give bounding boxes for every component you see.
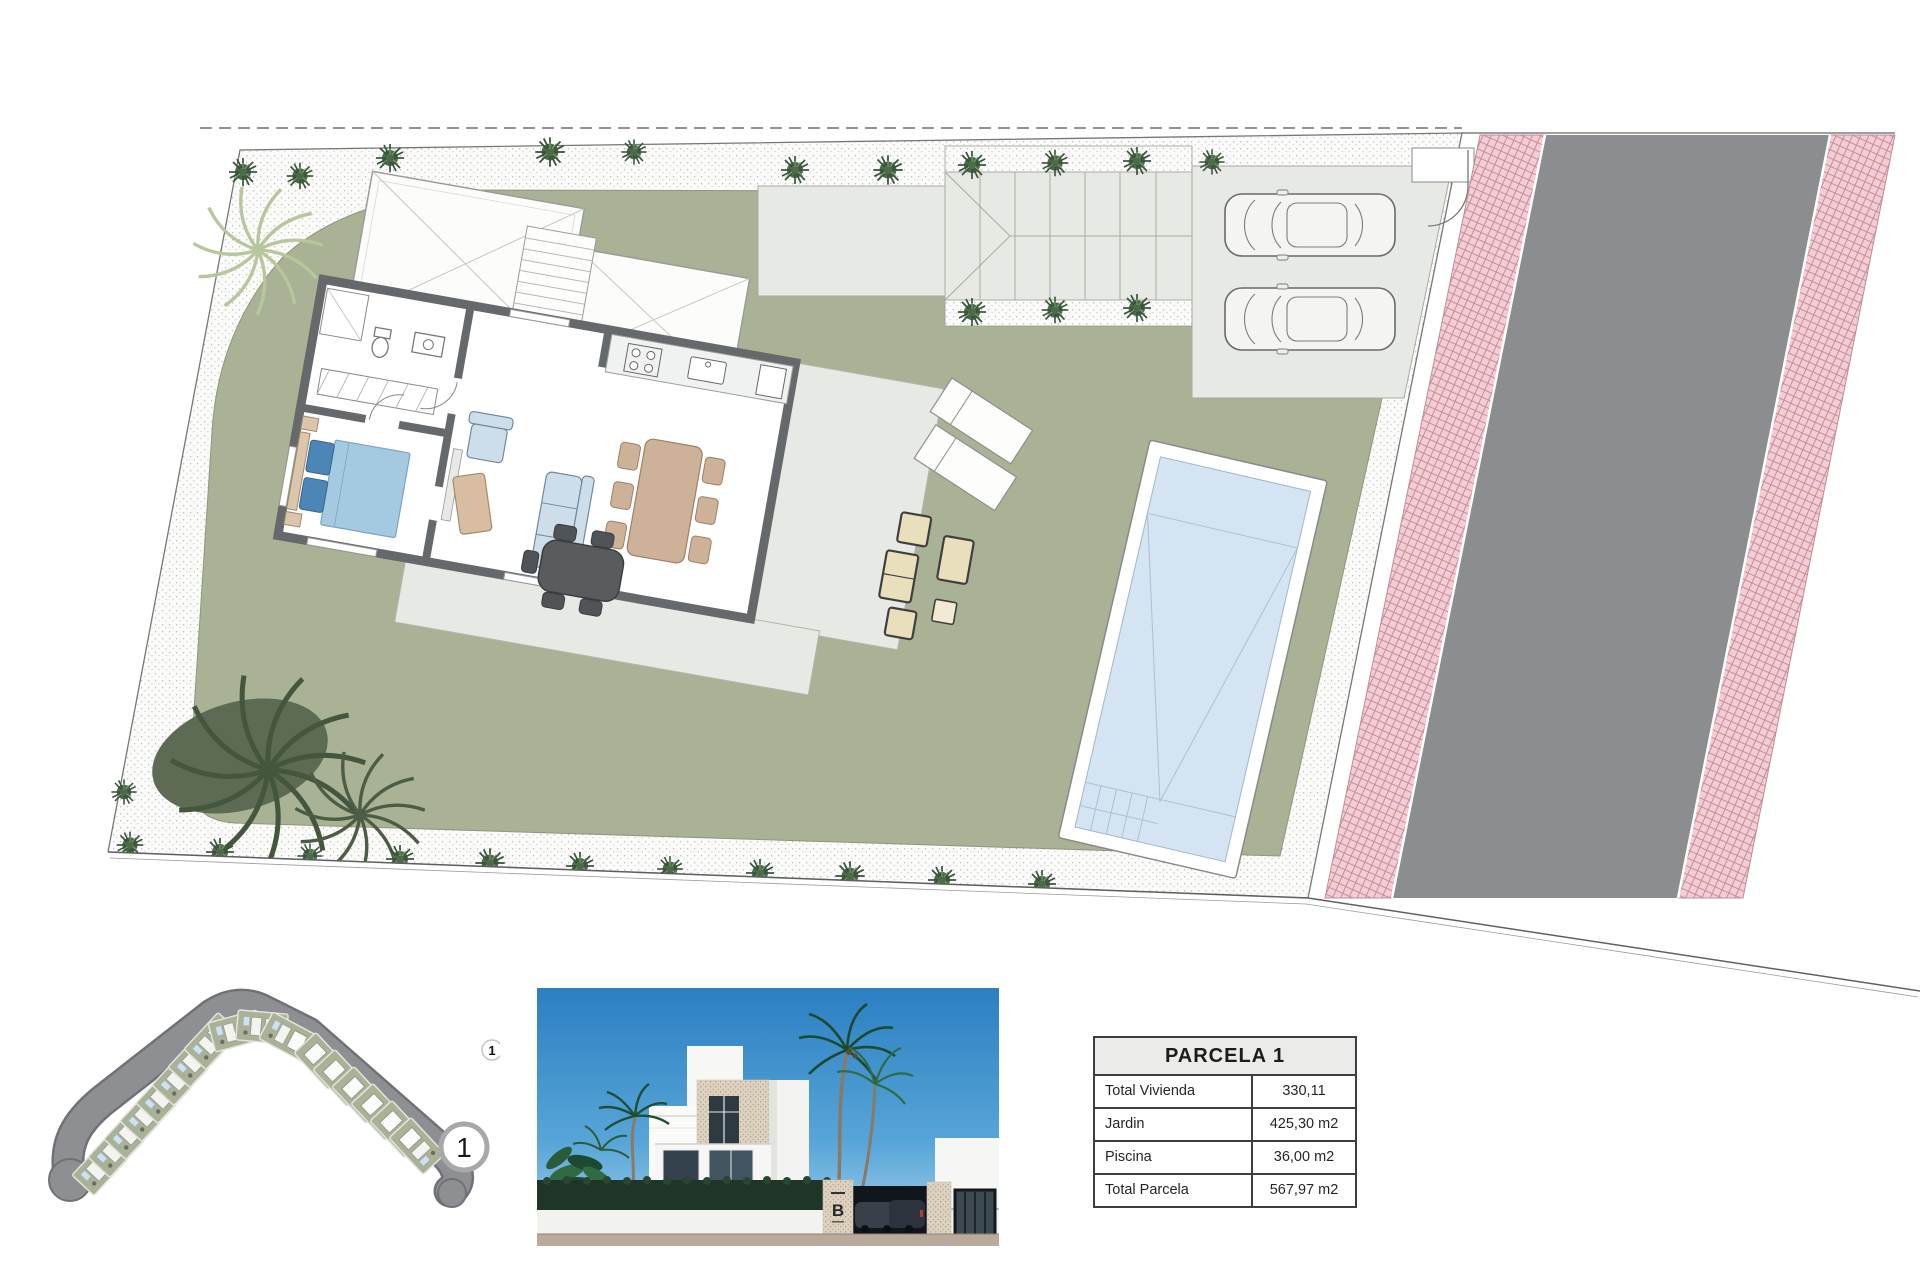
mini-marker: 1 [482, 1040, 500, 1060]
row-value: 425,30 m2 [1251, 1109, 1355, 1140]
driveway-pad [758, 186, 945, 296]
pergola [945, 172, 1192, 300]
table-row: Piscina 36,00 m2 [1095, 1140, 1355, 1173]
row-label: Total Vivienda [1095, 1076, 1251, 1107]
row-label: Jardin [1095, 1109, 1251, 1140]
row-value: 330,11 [1251, 1076, 1355, 1107]
planting-strip-lower [945, 300, 1192, 326]
brand-logo: B [832, 1201, 844, 1220]
parcel-table-title: PARCELA 1 [1093, 1036, 1357, 1076]
row-value: 36,00 m2 [1251, 1142, 1355, 1173]
street-strip [537, 1234, 999, 1246]
planting-strip-upper [945, 146, 1192, 172]
row-value: 567,97 m2 [1251, 1175, 1355, 1206]
svg-text:1: 1 [488, 1043, 495, 1058]
hedge [537, 1176, 837, 1214]
table-row: Jardin 425,30 m2 [1095, 1107, 1355, 1140]
map-plots [72, 1010, 445, 1196]
row-label: Total Parcela [1095, 1175, 1251, 1206]
svg-text:1: 1 [456, 1132, 472, 1163]
table-row: Total Parcela 567,97 m2 [1095, 1173, 1355, 1206]
location-map: 1 1 [40, 975, 500, 1265]
row-label: Piscina [1095, 1142, 1251, 1173]
table-row: Total Vivienda 330,11 [1095, 1076, 1355, 1107]
car-top-view-icon [1225, 284, 1395, 354]
plot-number-badge: 1 [441, 1124, 487, 1170]
brochure-page: 1 1 [0, 0, 1920, 1280]
site-plan [0, 0, 1920, 1010]
parcel-table: PARCELA 1 Total Vivienda 330,11 Jardin 4… [1093, 1036, 1357, 1208]
villa-render: B [537, 988, 999, 1246]
car-top-view-icon [1225, 190, 1395, 260]
